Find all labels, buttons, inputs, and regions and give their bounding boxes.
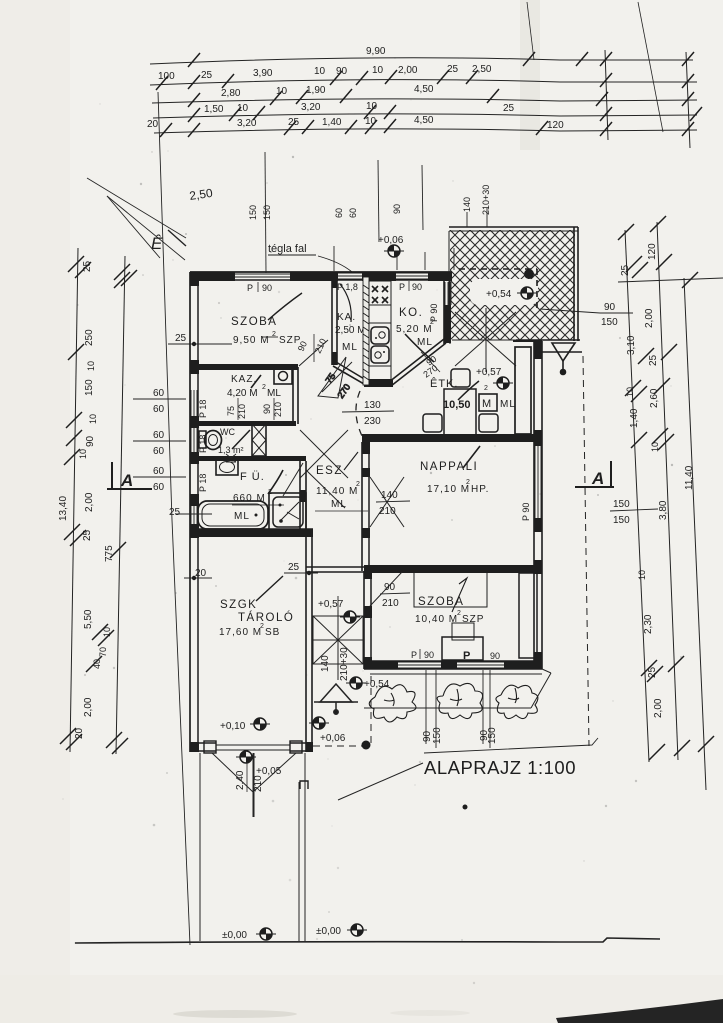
svg-text:2,80: 2,80 bbox=[221, 88, 241, 99]
svg-text:4,50: 4,50 bbox=[414, 84, 434, 95]
svg-text:P 18: P 18 bbox=[198, 474, 208, 492]
svg-text:210: 210 bbox=[253, 775, 264, 792]
svg-text:+0,54: +0,54 bbox=[486, 289, 512, 300]
svg-text:2: 2 bbox=[466, 479, 470, 486]
svg-text:210+30: 210+30 bbox=[481, 185, 491, 215]
svg-text:+0,05: +0,05 bbox=[256, 766, 282, 777]
svg-text:25: 25 bbox=[447, 64, 459, 75]
svg-text:90: 90 bbox=[392, 204, 402, 214]
svg-text:M: M bbox=[482, 398, 491, 410]
svg-text:210: 210 bbox=[382, 598, 399, 609]
svg-text:NAPPALI: NAPPALI bbox=[420, 461, 478, 473]
svg-text:2,00: 2,00 bbox=[83, 697, 94, 717]
svg-text:210+30: 210+30 bbox=[339, 647, 350, 681]
svg-text:ÊTK.: ÊTK. bbox=[430, 377, 458, 390]
svg-text:90: 90 bbox=[262, 404, 272, 414]
svg-text:1,90: 1,90 bbox=[306, 85, 326, 96]
svg-text:130: 130 bbox=[364, 400, 381, 411]
svg-text:10: 10 bbox=[237, 103, 249, 114]
svg-text:20: 20 bbox=[195, 568, 207, 579]
svg-text:±0,00: ±0,00 bbox=[222, 930, 247, 941]
svg-text:WC: WC bbox=[220, 427, 235, 437]
svg-text:90: 90 bbox=[412, 282, 422, 292]
svg-text:2,00: 2,00 bbox=[653, 698, 664, 718]
svg-text:120: 120 bbox=[647, 243, 658, 260]
svg-text:10: 10 bbox=[625, 387, 635, 397]
svg-text:2: 2 bbox=[430, 319, 434, 326]
svg-text:75: 75 bbox=[226, 406, 236, 416]
svg-text:230: 230 bbox=[364, 416, 381, 427]
svg-text:2,40: 2,40 bbox=[235, 770, 246, 790]
svg-text:2,00: 2,00 bbox=[398, 65, 418, 76]
svg-text:10: 10 bbox=[637, 570, 647, 580]
svg-text:210: 210 bbox=[237, 404, 247, 419]
svg-text:A: A bbox=[120, 471, 133, 490]
svg-text:13,40: 13,40 bbox=[58, 496, 69, 521]
svg-text:F Ü.: F Ü. bbox=[240, 471, 265, 483]
svg-text:90: 90 bbox=[336, 66, 348, 77]
svg-text:1,3 m²: 1,3 m² bbox=[218, 445, 244, 455]
svg-text:10: 10 bbox=[650, 442, 660, 452]
svg-text:4,50: 4,50 bbox=[414, 115, 434, 126]
svg-text:1,40: 1,40 bbox=[322, 117, 342, 128]
svg-text:150: 150 bbox=[487, 727, 498, 744]
svg-text:3,20: 3,20 bbox=[301, 102, 321, 113]
svg-text:P: P bbox=[247, 283, 253, 293]
svg-text:60: 60 bbox=[153, 404, 165, 415]
svg-text:SB: SB bbox=[265, 627, 280, 638]
svg-text:2: 2 bbox=[484, 385, 488, 392]
svg-text:2,00: 2,00 bbox=[84, 492, 95, 512]
svg-text:10: 10 bbox=[314, 66, 326, 77]
svg-text:KAZ.: KAZ. bbox=[231, 374, 257, 385]
svg-text:60: 60 bbox=[153, 388, 165, 399]
svg-text:SZGK: SZGK bbox=[220, 599, 257, 611]
svg-text:90: 90 bbox=[262, 283, 272, 293]
svg-text:25: 25 bbox=[169, 507, 181, 518]
svg-text:90: 90 bbox=[604, 302, 616, 313]
svg-text:ML: ML bbox=[234, 511, 250, 522]
svg-text:25: 25 bbox=[201, 70, 213, 81]
svg-text:P 90: P 90 bbox=[521, 503, 531, 521]
svg-text:60: 60 bbox=[348, 208, 358, 218]
svg-text:150: 150 bbox=[432, 727, 443, 744]
svg-text:5,50: 5,50 bbox=[83, 609, 94, 629]
svg-text:ALAPRAJZ 1:100: ALAPRAJZ 1:100 bbox=[424, 757, 576, 778]
svg-text:25: 25 bbox=[82, 529, 93, 541]
svg-text:150: 150 bbox=[84, 379, 95, 396]
svg-text:660 M: 660 M bbox=[233, 493, 266, 504]
svg-text:ML: ML bbox=[417, 337, 433, 348]
svg-text:2: 2 bbox=[457, 610, 461, 617]
svg-text:+0,57: +0,57 bbox=[476, 367, 502, 378]
svg-text:60: 60 bbox=[334, 208, 344, 218]
svg-text:60: 60 bbox=[153, 466, 165, 477]
svg-text:40: 40 bbox=[92, 659, 102, 669]
svg-text:Ê: Ê bbox=[151, 234, 163, 253]
svg-text:KA.: KA. bbox=[337, 312, 356, 323]
svg-text:25: 25 bbox=[503, 103, 515, 114]
svg-text:150: 150 bbox=[601, 317, 618, 328]
svg-text:17,60 M: 17,60 M bbox=[219, 627, 262, 638]
svg-text:1,50: 1,50 bbox=[204, 104, 224, 115]
svg-text:10: 10 bbox=[276, 86, 288, 97]
svg-text:25: 25 bbox=[175, 333, 187, 344]
svg-text:25: 25 bbox=[288, 117, 300, 128]
svg-text:5,20 M: 5,20 M bbox=[396, 324, 433, 335]
svg-text:10: 10 bbox=[78, 449, 88, 459]
svg-text:10,50: 10,50 bbox=[443, 399, 471, 411]
svg-text:+0,06: +0,06 bbox=[320, 733, 346, 744]
svg-text:ML: ML bbox=[342, 342, 358, 353]
svg-text:150: 150 bbox=[248, 205, 258, 220]
svg-text:25: 25 bbox=[620, 264, 631, 276]
svg-text:10: 10 bbox=[86, 361, 96, 371]
svg-text:P 18: P 18 bbox=[198, 400, 208, 418]
svg-text:90: 90 bbox=[85, 435, 96, 447]
svg-text:KO.: KO. bbox=[399, 307, 423, 319]
svg-text:90: 90 bbox=[424, 650, 434, 660]
svg-text:ML: ML bbox=[500, 399, 516, 410]
svg-text:2,50 M: 2,50 M bbox=[335, 325, 366, 336]
svg-text:+0,06: +0,06 bbox=[378, 235, 404, 246]
svg-text:150: 150 bbox=[613, 515, 630, 526]
svg-text:20: 20 bbox=[74, 727, 85, 739]
svg-text:1,40: 1,40 bbox=[629, 408, 640, 428]
svg-text:10: 10 bbox=[366, 101, 378, 112]
svg-text:11,40: 11,40 bbox=[684, 465, 695, 490]
svg-text:2,00: 2,00 bbox=[644, 308, 655, 328]
svg-text:150: 150 bbox=[262, 205, 272, 220]
svg-text:10: 10 bbox=[365, 116, 377, 127]
svg-text:P: P bbox=[411, 650, 417, 660]
svg-text:25: 25 bbox=[288, 562, 300, 573]
svg-text:20: 20 bbox=[147, 119, 159, 130]
svg-text:+0,57: +0,57 bbox=[318, 599, 344, 610]
svg-text:SZP: SZP bbox=[279, 335, 301, 346]
svg-text:100: 100 bbox=[158, 71, 175, 82]
svg-text:+0,54: +0,54 bbox=[364, 679, 390, 690]
svg-text:140: 140 bbox=[381, 490, 398, 501]
svg-text:P 1,8: P 1,8 bbox=[337, 282, 358, 292]
svg-text:3,20: 3,20 bbox=[237, 118, 257, 129]
svg-text:10: 10 bbox=[372, 65, 384, 76]
svg-text:25: 25 bbox=[647, 666, 658, 678]
svg-text:60: 60 bbox=[153, 482, 165, 493]
svg-text:tégla fal: tégla fal bbox=[268, 243, 307, 255]
svg-text:+0,10: +0,10 bbox=[220, 721, 246, 732]
svg-text:3,10: 3,10 bbox=[626, 335, 637, 355]
svg-text:10: 10 bbox=[102, 627, 112, 637]
svg-text:2,50: 2,50 bbox=[472, 64, 492, 75]
svg-text:210: 210 bbox=[273, 402, 283, 417]
svg-text:120: 120 bbox=[547, 120, 564, 131]
svg-text:11,40 M: 11,40 M bbox=[316, 486, 358, 497]
svg-text:9,90: 9,90 bbox=[366, 46, 386, 57]
svg-text:250: 250 bbox=[84, 329, 95, 346]
svg-text:25: 25 bbox=[82, 260, 93, 272]
svg-text:2: 2 bbox=[356, 481, 360, 488]
svg-text:2,30: 2,30 bbox=[643, 614, 654, 634]
svg-text:60: 60 bbox=[153, 446, 165, 457]
svg-text:25: 25 bbox=[648, 354, 659, 366]
svg-text:2: 2 bbox=[260, 623, 264, 630]
svg-text:2,60: 2,60 bbox=[649, 388, 660, 408]
svg-text:HP.: HP. bbox=[471, 484, 489, 495]
svg-text:140: 140 bbox=[462, 197, 472, 212]
svg-text:90: 90 bbox=[490, 651, 500, 661]
svg-text:140: 140 bbox=[320, 655, 331, 672]
svg-text:775: 775 bbox=[104, 545, 115, 562]
svg-text:A: A bbox=[591, 469, 604, 488]
svg-text:±0,00: ±0,00 bbox=[316, 926, 341, 937]
svg-text:2: 2 bbox=[262, 384, 266, 391]
svg-text:TÁROLÓ: TÁROLÓ bbox=[238, 611, 294, 624]
svg-text:60: 60 bbox=[153, 430, 165, 441]
svg-text:70: 70 bbox=[98, 647, 108, 657]
svg-text:10: 10 bbox=[88, 414, 98, 424]
svg-text:P: P bbox=[399, 282, 405, 292]
svg-text:150: 150 bbox=[613, 499, 630, 510]
svg-text:SZOBA: SZOBA bbox=[418, 596, 464, 608]
svg-text:90: 90 bbox=[384, 582, 396, 593]
svg-text:3,90: 3,90 bbox=[253, 68, 273, 79]
svg-text:17,10 M: 17,10 M bbox=[427, 484, 470, 495]
svg-text:3,80: 3,80 bbox=[658, 500, 669, 520]
svg-text:ML: ML bbox=[331, 499, 347, 510]
svg-text:ML: ML bbox=[267, 388, 281, 399]
svg-text:ESZ: ESZ bbox=[316, 465, 343, 477]
svg-text:4,20 M: 4,20 M bbox=[227, 388, 258, 399]
svg-text:210: 210 bbox=[379, 506, 396, 517]
